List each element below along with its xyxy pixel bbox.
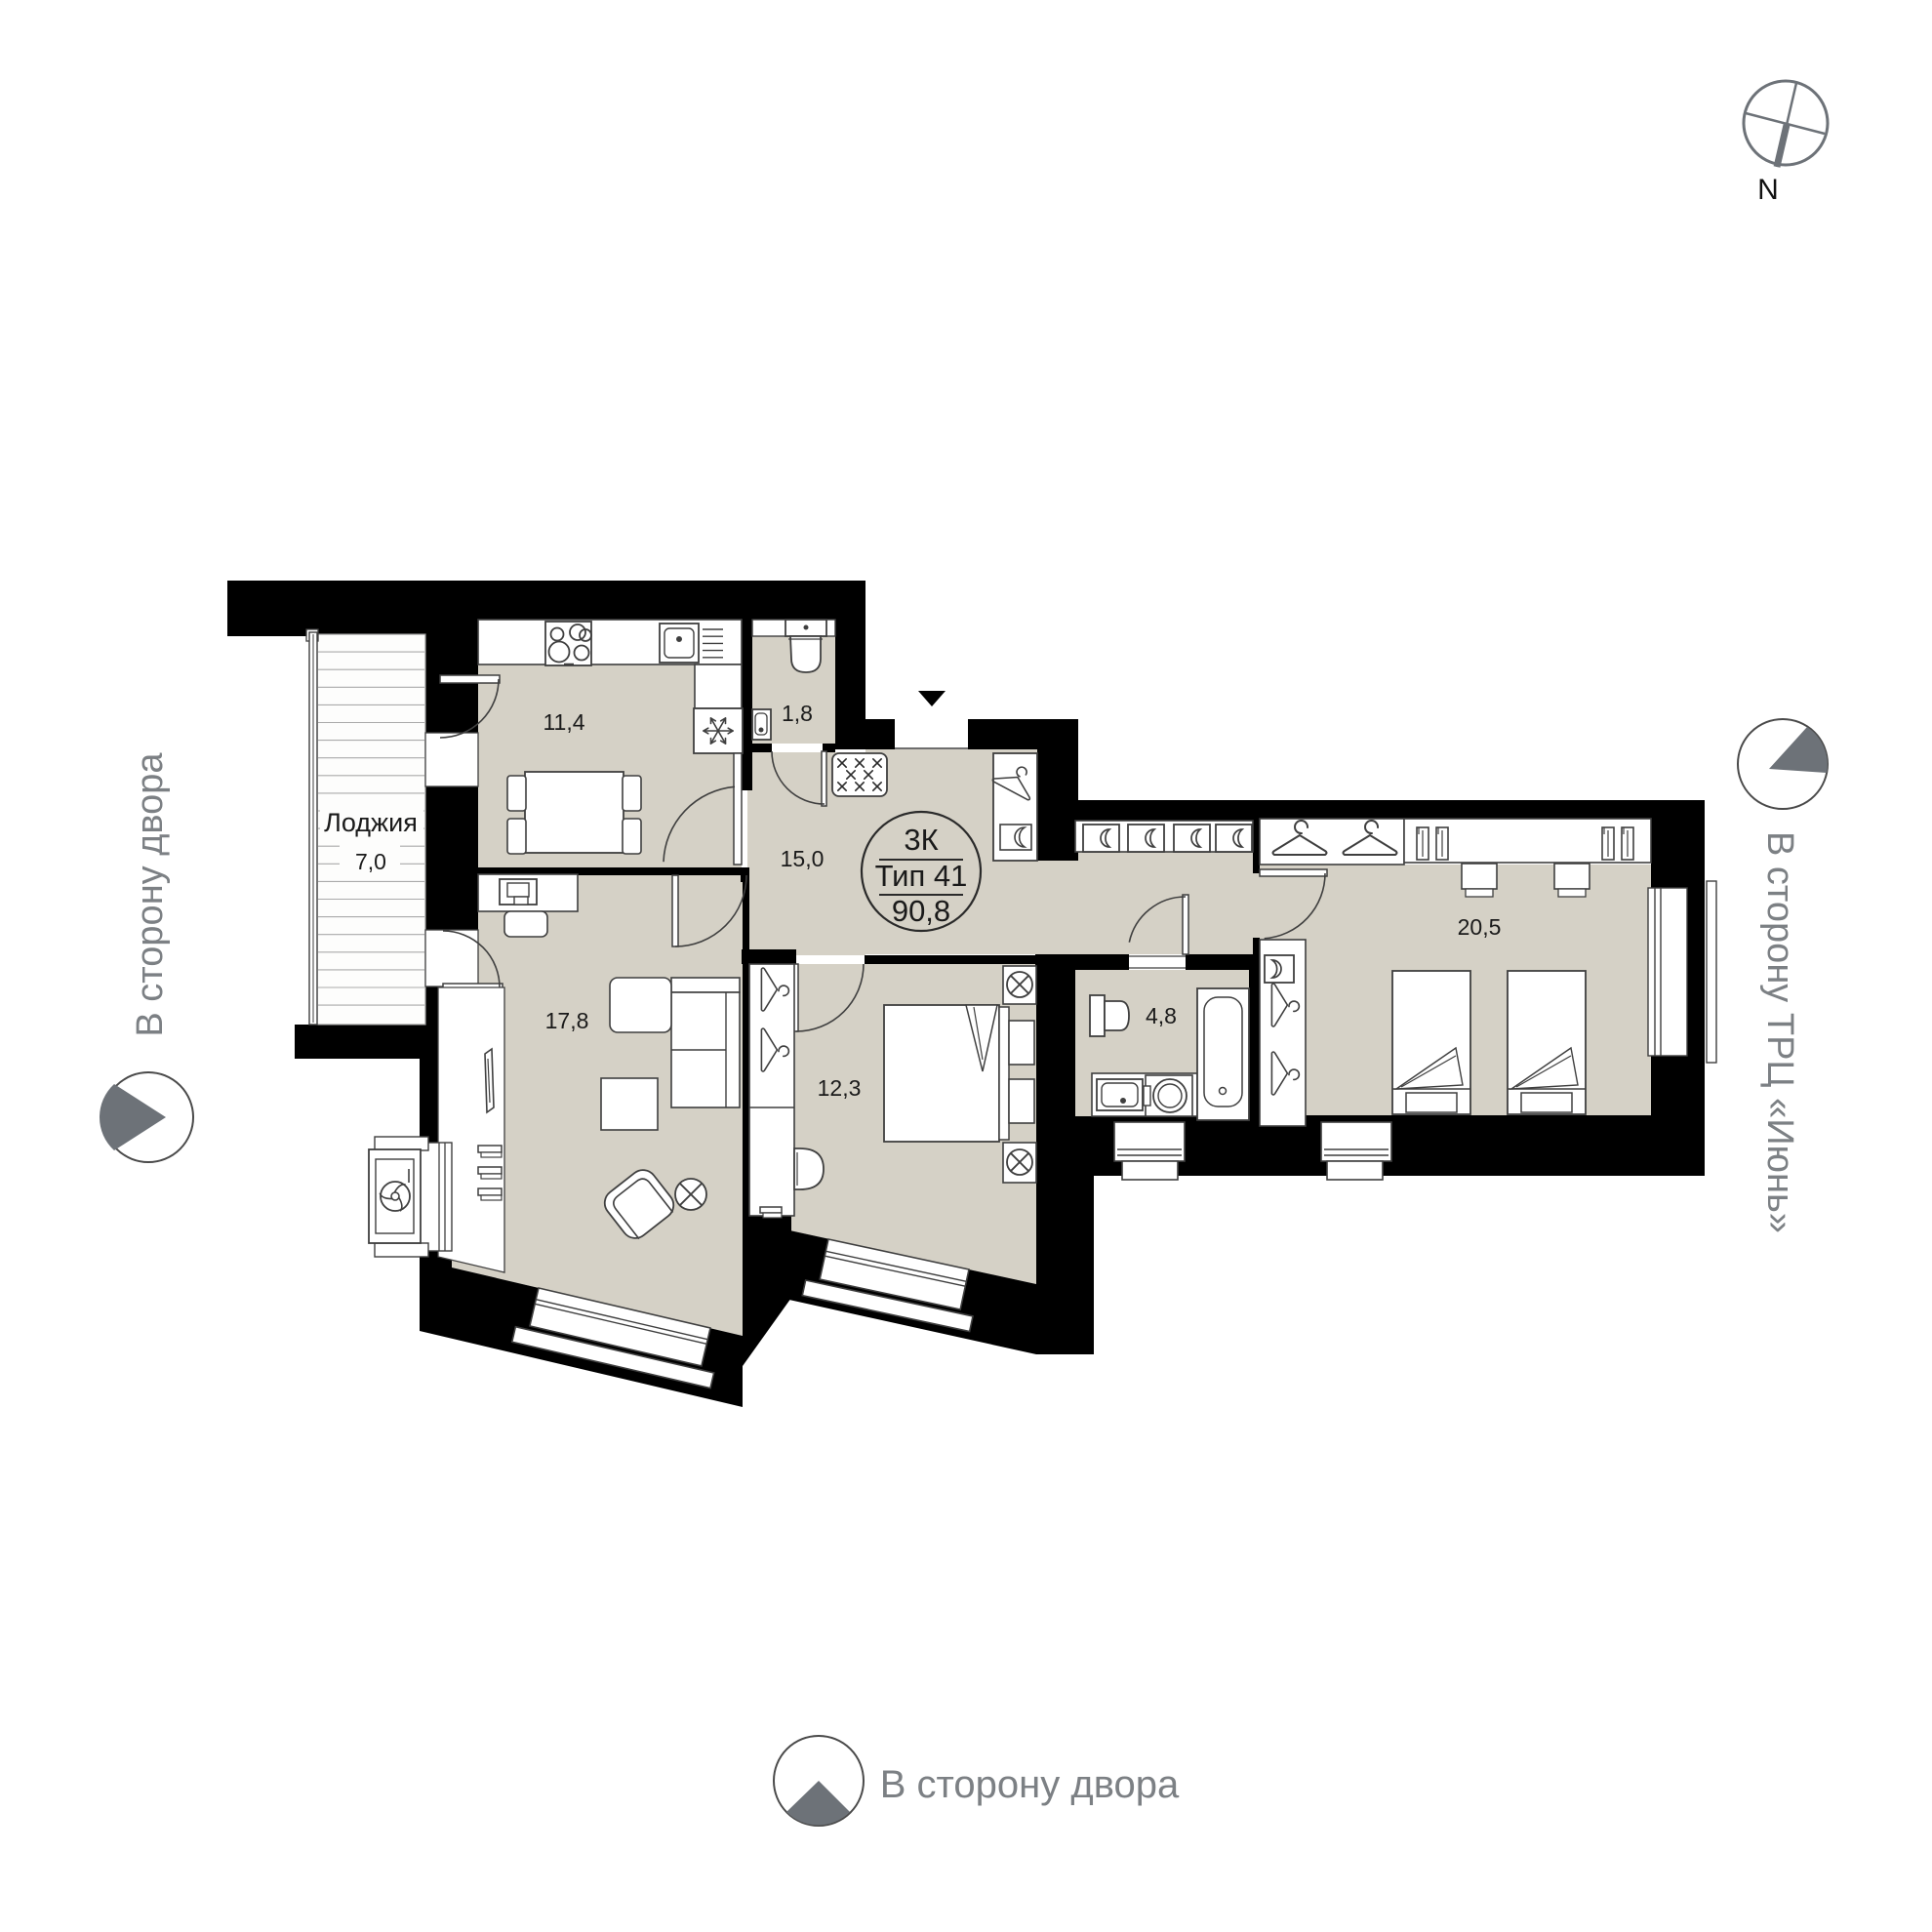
svg-text:90,8: 90,8: [892, 894, 950, 928]
svg-text:20,5: 20,5: [1458, 914, 1502, 940]
svg-text:В сторону двора: В сторону двора: [880, 1763, 1180, 1806]
svg-text:1,8: 1,8: [782, 701, 813, 726]
svg-text:Лоджия: Лоджия: [324, 808, 418, 837]
svg-text:В сторону двора: В сторону двора: [130, 752, 171, 1037]
svg-text:Тип 41: Тип 41: [875, 859, 968, 893]
svg-text:7,0: 7,0: [355, 849, 386, 874]
svg-text:15,0: 15,0: [781, 846, 825, 871]
svg-text:12,3: 12,3: [818, 1075, 862, 1101]
svg-text:В сторону ТРЦ «Июнь»: В сторону ТРЦ «Июнь»: [1759, 831, 1800, 1233]
svg-text:N: N: [1757, 174, 1779, 206]
svg-text:17,8: 17,8: [545, 1008, 589, 1033]
svg-text:4,8: 4,8: [1146, 1003, 1177, 1028]
svg-text:11,4: 11,4: [543, 709, 584, 735]
svg-text:3К: 3К: [904, 823, 938, 857]
